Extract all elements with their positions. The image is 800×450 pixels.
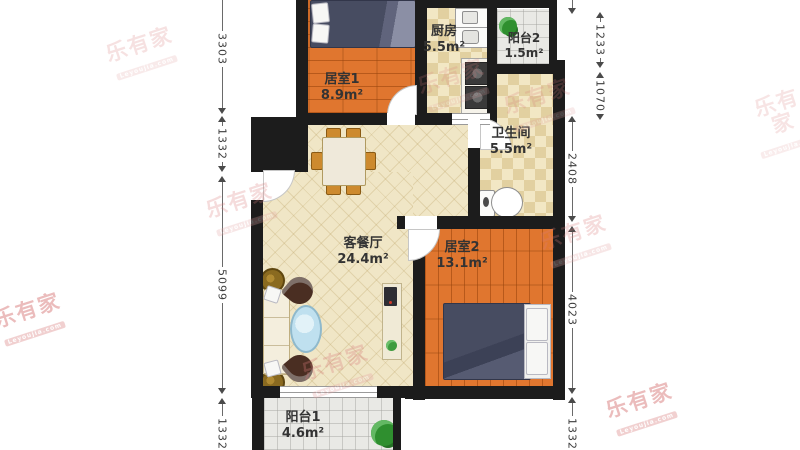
dimension-value: 1233	[594, 22, 607, 58]
arrow-down-icon	[568, 216, 576, 222]
wall-balcony1-right	[393, 398, 401, 450]
arrow-down-icon	[596, 62, 604, 68]
floorplan-canvas: 居室1 8.9m² 厨房 5.5m² 阳台2 1.5m² 卫生间 5.5m² 客…	[0, 0, 800, 450]
room-name: 居室1	[321, 72, 363, 88]
dimension-value: 2408	[566, 151, 579, 187]
bed2-pillow	[526, 342, 548, 375]
wall-entry-corner-mass	[251, 117, 308, 172]
dimension-left-5099: 5099	[214, 176, 230, 394]
room-area: 8.9m²	[321, 88, 363, 104]
arrow-down-icon	[568, 8, 576, 14]
room-area: 13.1m²	[436, 256, 487, 272]
bedroom2-label: 居室2 13.1m²	[436, 240, 487, 273]
wall-bedroom2-bottom	[405, 386, 565, 399]
dimension-value: 1332	[216, 126, 229, 162]
room-area: 24.4m²	[337, 252, 388, 268]
balcony2-label: 阳台2 1.5m²	[504, 31, 543, 61]
brand-watermark: 乐有家 Leyoujia.com	[744, 84, 800, 161]
entry-door-opening	[251, 172, 263, 200]
dimension-value: 4023	[566, 292, 579, 328]
room-area: 5.5m²	[490, 142, 532, 158]
wall-balcony2-bathroom	[490, 64, 557, 74]
bed2-furniture	[443, 303, 531, 380]
bedroom1-door-opening	[387, 113, 415, 125]
dimension-value: 1332	[216, 416, 229, 450]
dimension-left-1332a: 1332	[214, 116, 230, 172]
dimension-right-2408: 2408	[564, 116, 580, 222]
brand-watermark-text: 乐有家	[104, 24, 176, 65]
dimension-left-1332b: 1332	[214, 398, 230, 450]
wall-living-left	[251, 170, 263, 386]
room-name: 阳台1	[282, 410, 324, 426]
room-area: 5.5m²	[423, 40, 465, 56]
arrow-down-icon	[218, 388, 226, 394]
wall-balcony1-left	[252, 386, 264, 450]
coffee-table	[290, 305, 322, 353]
dimension-value: 5099	[216, 267, 229, 303]
bedroom2-door-opening	[405, 216, 437, 229]
wall-balcony2-right	[549, 2, 557, 66]
wall-kitchen-right	[487, 0, 497, 125]
bed1-pillow	[311, 23, 330, 43]
dimension-right-1070: 1070	[592, 72, 608, 116]
brand-watermark-domain: Leyoujia.com	[4, 321, 66, 347]
brand-watermark: 乐有家 Leyoujia.com	[604, 380, 682, 439]
arrow-down-icon	[218, 108, 226, 114]
cutting-board-icon	[462, 11, 478, 24]
dimension-value: 3303	[216, 31, 229, 67]
balcony1-sliding-door	[280, 386, 377, 398]
balcony1-label: 阳台1 4.6m²	[282, 410, 324, 443]
room-area: 1.5m²	[504, 46, 543, 61]
toilet-bowl-icon	[491, 187, 523, 218]
tv-power-dot	[389, 301, 392, 304]
wall-top	[415, 0, 557, 8]
dimension-right-1332: 1332	[564, 397, 580, 450]
bed1-pillow	[311, 2, 330, 24]
brand-watermark-domain: Leyoujia.com	[616, 411, 678, 437]
dimension-left-3303: 3303	[214, 0, 230, 114]
dimension-right-9: 9	[564, 0, 580, 14]
arrow-down-icon	[568, 388, 576, 394]
brand-watermark-text: 乐有家	[0, 290, 64, 331]
wall-bedroom1-left	[296, 0, 308, 129]
brand-watermark-text: 乐有家	[604, 380, 676, 421]
brand-watermark-domain: Leyoujia.com	[116, 55, 178, 81]
room-name: 客餐厅	[337, 236, 388, 252]
living-label: 客餐厅 24.4m²	[337, 236, 388, 269]
brand-watermark: 乐有家 Leyoujia.com	[0, 290, 69, 349]
toilet-flush-button	[483, 197, 489, 207]
dining-table	[322, 137, 366, 186]
cabinet-plant-icon	[386, 340, 397, 351]
bathroom-door-opening	[468, 118, 480, 148]
dimension-right-1233: 1233	[592, 12, 608, 68]
room-name: 厨房	[423, 24, 465, 40]
kitchen-label: 厨房 5.5m²	[423, 24, 465, 57]
room-name: 阳台2	[504, 31, 543, 46]
arrow-down-icon	[218, 166, 226, 172]
bathroom-floor-upper	[497, 74, 553, 128]
room-area: 4.6m²	[282, 426, 324, 442]
arrow-down-icon	[596, 114, 604, 120]
bedroom1-label: 居室1 8.9m²	[321, 72, 363, 105]
room-name: 居室2	[436, 240, 487, 256]
dimension-right-4023: 4023	[564, 226, 580, 394]
bed2-pillow	[526, 308, 548, 341]
dimension-value: 1332	[566, 416, 579, 450]
brand-watermark-domain: Leyoujia.com	[760, 133, 800, 159]
brand-watermark-text: 乐有家	[744, 84, 800, 143]
bathroom-label: 卫生间 5.5m²	[490, 126, 532, 159]
room-name: 卫生间	[490, 126, 532, 142]
brand-watermark: 乐有家 Leyoujia.com	[104, 24, 182, 83]
dimension-value: 1070	[594, 78, 607, 114]
